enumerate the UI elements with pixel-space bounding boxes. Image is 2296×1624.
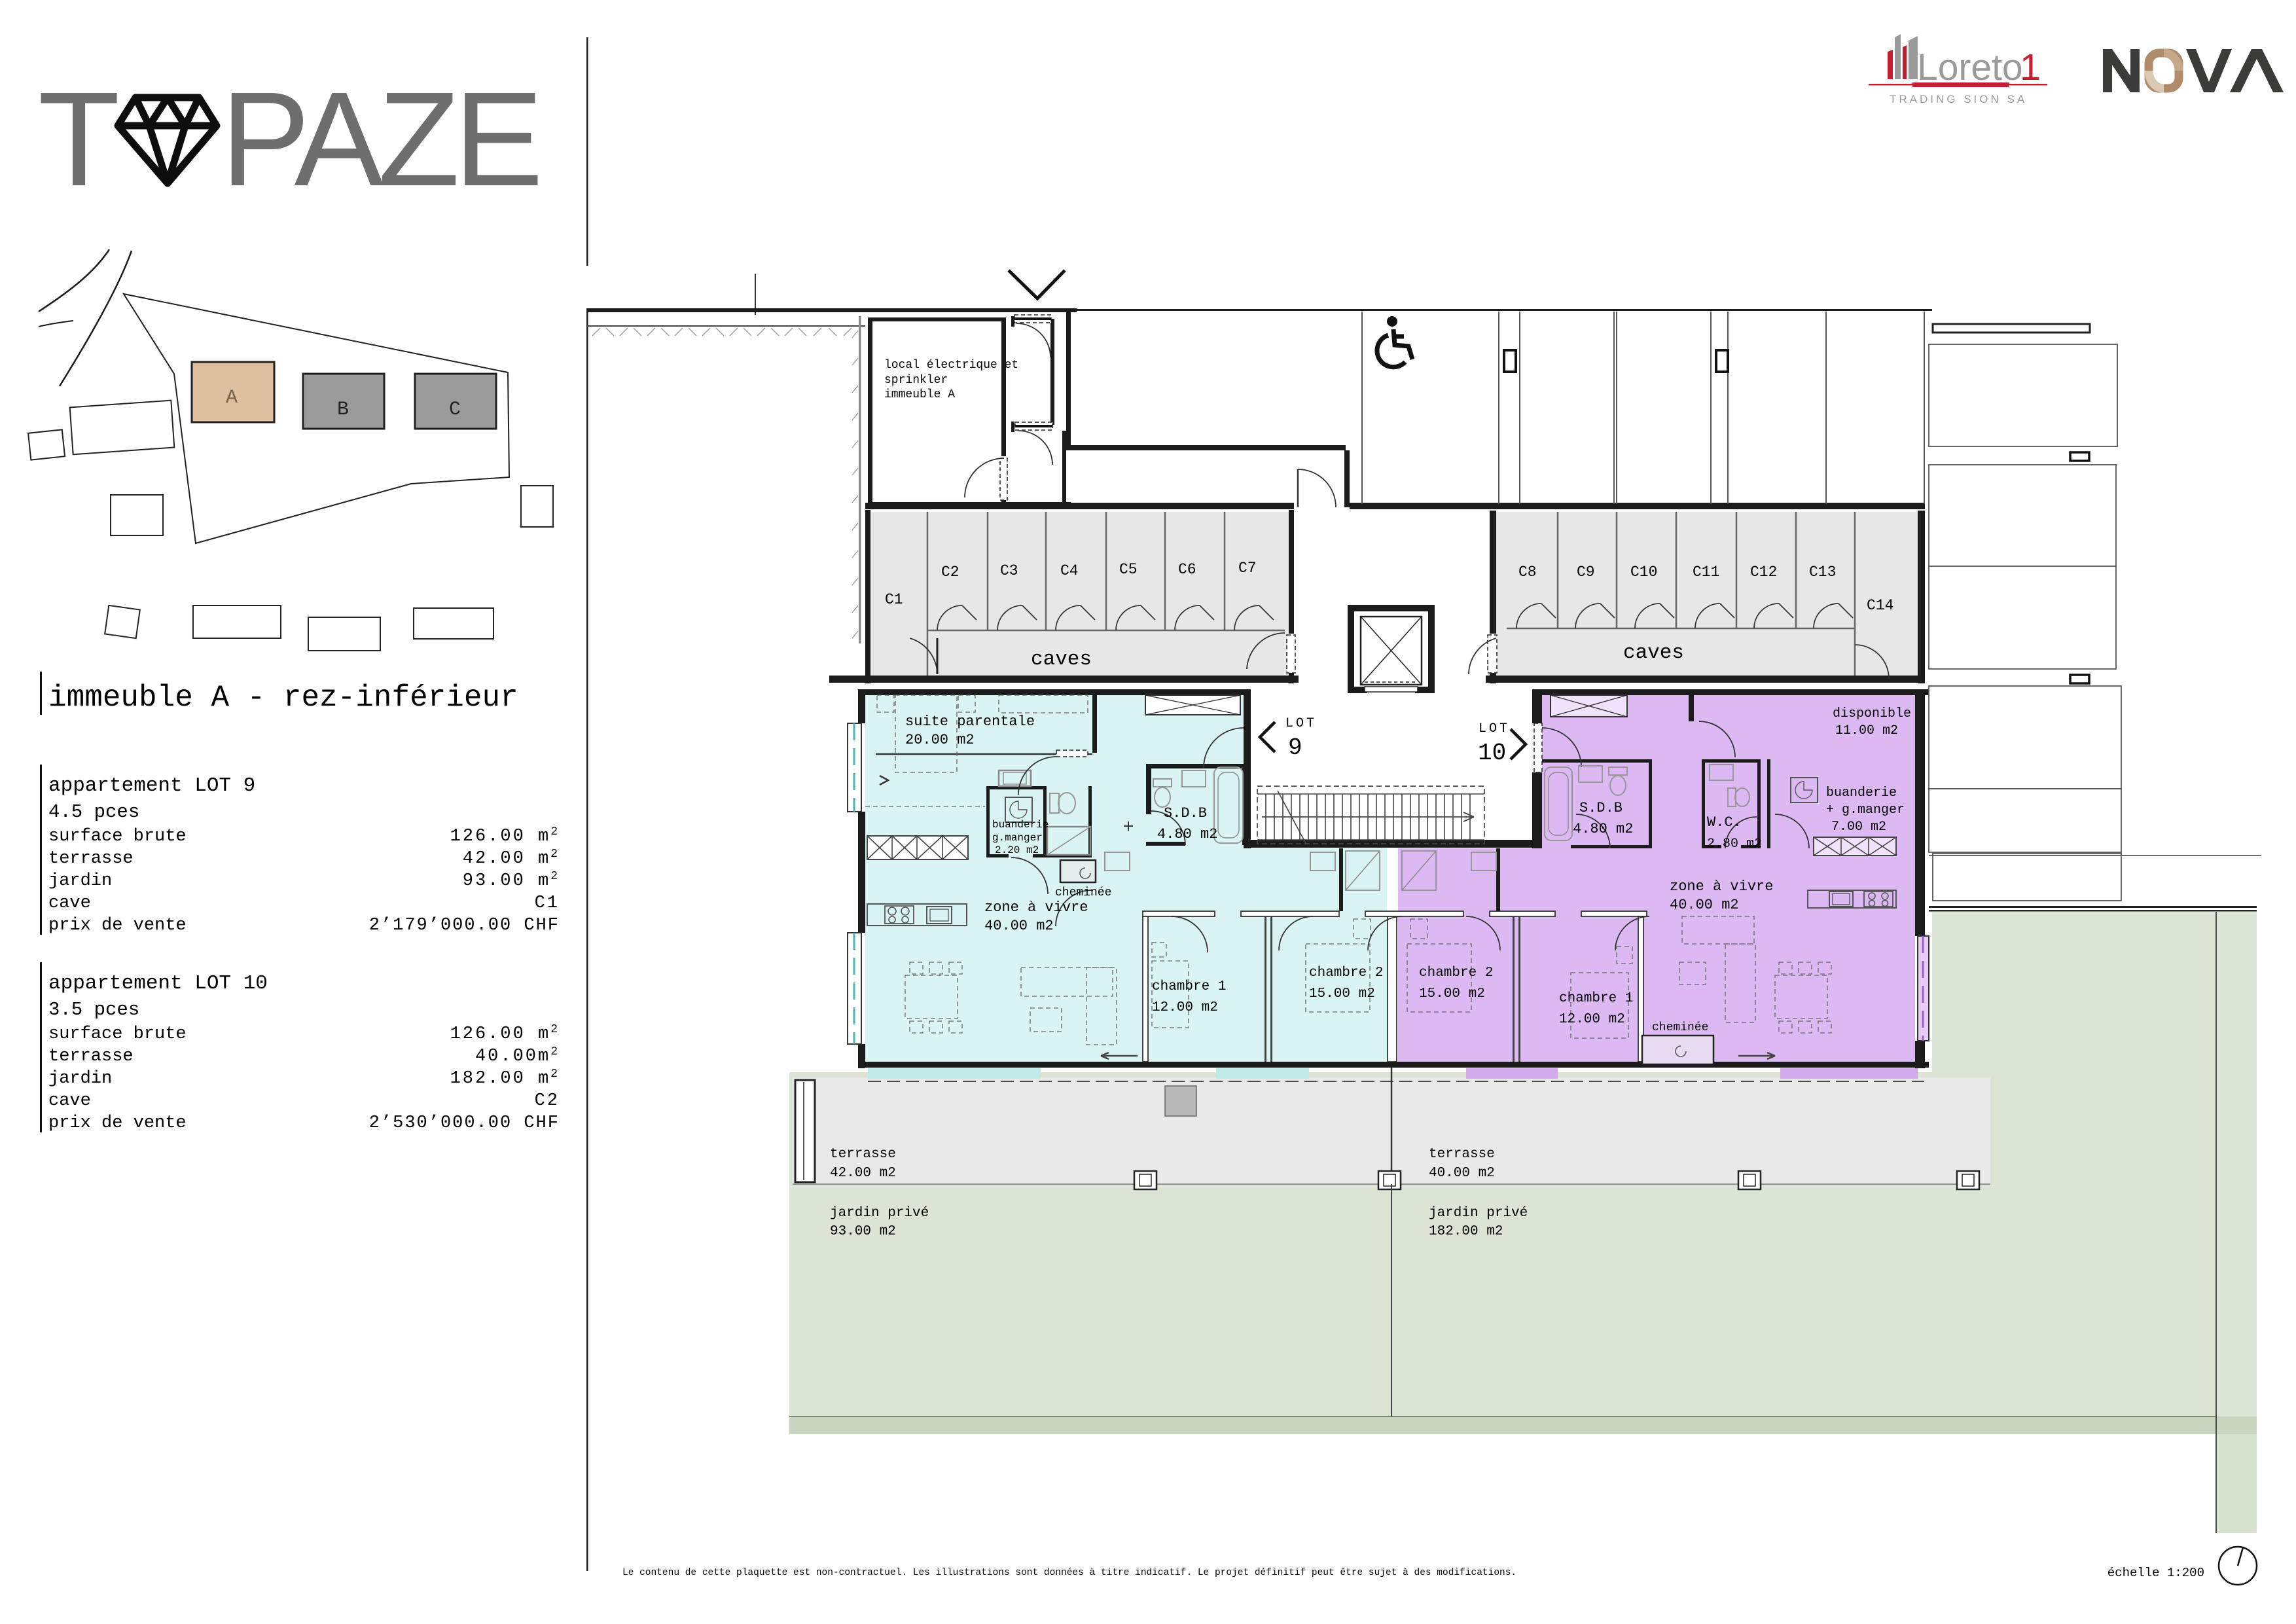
- svg-text:40.00m2: 40.00m2: [475, 1045, 560, 1066]
- svg-text:+ g.manger: + g.manger: [1826, 803, 1905, 818]
- svg-text:PAZE: PAZE: [221, 64, 537, 214]
- svg-text:chambre 2: chambre 2: [1419, 965, 1493, 981]
- svg-text:W.C.: W.C.: [1707, 814, 1742, 831]
- svg-text:appartement LOT 10: appartement LOT 10: [48, 972, 268, 995]
- svg-text:terrasse: terrasse: [830, 1147, 896, 1162]
- svg-text:cave: cave: [48, 1091, 91, 1111]
- svg-text:2’179’000.00 CHF: 2’179’000.00 CHF: [369, 916, 560, 935]
- svg-text:20.00 m2: 20.00 m2: [905, 732, 975, 748]
- svg-text:zone à vivre: zone à vivre: [984, 899, 1088, 916]
- svg-text:terrasse: terrasse: [1429, 1147, 1495, 1162]
- svg-text:surface brute: surface brute: [48, 827, 187, 846]
- svg-text:Loreto: Loreto: [1917, 46, 2023, 88]
- svg-text:126.00 m2: 126.00 m2: [450, 825, 560, 846]
- svg-text:C1: C1: [535, 893, 560, 913]
- svg-text:1: 1: [2020, 46, 2041, 88]
- svg-text:C1: C1: [885, 591, 903, 608]
- svg-text:93.00 m2: 93.00 m2: [830, 1224, 896, 1239]
- svg-text:chambre 2: chambre 2: [1309, 965, 1383, 981]
- svg-text:S.D.B: S.D.B: [1579, 800, 1623, 816]
- svg-text:immeuble A - rez-inférieur: immeuble A - rez-inférieur: [48, 681, 518, 715]
- svg-text:C6: C6: [1178, 561, 1196, 578]
- svg-text:182.00 m2: 182.00 m2: [1429, 1224, 1503, 1239]
- svg-text:9: 9: [1288, 734, 1302, 761]
- svg-text:2.20 m2: 2.20 m2: [995, 844, 1039, 856]
- svg-text:10: 10: [1478, 740, 1506, 767]
- svg-text:C5: C5: [1119, 561, 1138, 578]
- svg-text:S.D.B: S.D.B: [1164, 805, 1207, 821]
- svg-text:LOT: LOT: [1285, 716, 1317, 731]
- svg-text:4.80 m2: 4.80 m2: [1573, 821, 1633, 837]
- svg-text:126.00 m2: 126.00 m2: [450, 1023, 560, 1044]
- svg-text:C4: C4: [1060, 562, 1079, 579]
- svg-text:4.80 m2: 4.80 m2: [1157, 826, 1217, 842]
- svg-text:appartement LOT 9: appartement LOT 9: [48, 774, 255, 797]
- svg-text:chambre 1: chambre 1: [1152, 979, 1226, 994]
- svg-text:cheminée: cheminée: [1055, 886, 1111, 899]
- svg-text:C12: C12: [1750, 564, 1777, 581]
- svg-text:cave: cave: [48, 893, 91, 913]
- svg-text:disponible: disponible: [1833, 706, 1911, 721]
- svg-text:local électrique et: local électrique et: [884, 359, 1018, 372]
- svg-text:TRADING SION SA: TRADING SION SA: [1890, 93, 2027, 105]
- svg-text:11.00 m2: 11.00 m2: [1835, 723, 1898, 738]
- svg-text:prix de vente: prix de vente: [48, 916, 187, 935]
- svg-text:2.80 m2: 2.80 m2: [1707, 837, 1762, 852]
- svg-text:jardin privé: jardin privé: [1429, 1206, 1528, 1221]
- svg-text:C2: C2: [941, 564, 960, 581]
- svg-text:jardin: jardin: [48, 1069, 112, 1089]
- svg-text:C3: C3: [1000, 562, 1018, 579]
- svg-text:immeuble A: immeuble A: [884, 388, 955, 401]
- svg-text:C9: C9: [1577, 564, 1595, 581]
- svg-text:42.00 m2: 42.00 m2: [830, 1166, 896, 1181]
- svg-text:C8: C8: [1518, 564, 1537, 581]
- svg-text:buanderie: buanderie: [992, 819, 1049, 831]
- svg-text:15.00 m2: 15.00 m2: [1419, 986, 1485, 1001]
- svg-text:surface brute: surface brute: [48, 1024, 187, 1044]
- svg-text:A: A: [226, 387, 238, 409]
- svg-text:C11: C11: [1693, 564, 1719, 581]
- svg-text:caves: caves: [1031, 648, 1092, 671]
- svg-text:C10: C10: [1630, 564, 1657, 581]
- svg-text:C13: C13: [1809, 564, 1836, 581]
- svg-text:LOT: LOT: [1479, 721, 1510, 736]
- svg-text:sprinkler: sprinkler: [884, 374, 948, 387]
- svg-text:40.00 m2: 40.00 m2: [1670, 897, 1739, 913]
- svg-text:terrasse: terrasse: [48, 849, 134, 869]
- svg-text:15.00 m2: 15.00 m2: [1309, 986, 1375, 1001]
- svg-text:cheminée: cheminée: [1652, 1021, 1708, 1034]
- svg-text:caves: caves: [1623, 641, 1684, 664]
- svg-text:40.00 m2: 40.00 m2: [1429, 1166, 1495, 1181]
- svg-text:93.00 m2: 93.00 m2: [463, 870, 560, 891]
- svg-text:échelle 1:200: échelle 1:200: [2108, 1566, 2204, 1580]
- svg-text:C: C: [449, 399, 461, 421]
- svg-text:3.5 pces: 3.5 pces: [48, 999, 139, 1020]
- svg-text:12.00 m2: 12.00 m2: [1559, 1012, 1625, 1027]
- svg-text:42.00 m2: 42.00 m2: [463, 848, 560, 869]
- svg-text:zone à vivre: zone à vivre: [1670, 878, 1773, 895]
- svg-text:7.00 m2: 7.00 m2: [1831, 820, 1886, 835]
- svg-text:buanderie: buanderie: [1826, 785, 1897, 801]
- svg-text:Le contenu de cette plaquette: Le contenu de cette plaquette est non-co…: [622, 1568, 1516, 1578]
- svg-text:B: B: [337, 399, 349, 421]
- svg-text:terrasse: terrasse: [48, 1047, 134, 1066]
- svg-text:C14: C14: [1867, 597, 1893, 614]
- svg-text:jardin: jardin: [48, 871, 112, 891]
- svg-text:4.5 pces: 4.5 pces: [48, 801, 139, 823]
- svg-text:suite parentale: suite parentale: [905, 713, 1035, 730]
- svg-text:chambre 1: chambre 1: [1559, 991, 1633, 1006]
- svg-text:C7: C7: [1238, 560, 1257, 577]
- svg-text:T: T: [38, 64, 120, 214]
- svg-text:jardin privé: jardin privé: [830, 1206, 929, 1221]
- svg-text:prix de vente: prix de vente: [48, 1113, 187, 1133]
- svg-text:12.00 m2: 12.00 m2: [1152, 1000, 1218, 1015]
- svg-text:g.manger: g.manger: [992, 832, 1043, 844]
- svg-text:C2: C2: [535, 1091, 560, 1111]
- svg-text:2’530’000.00 CHF: 2’530’000.00 CHF: [369, 1113, 560, 1133]
- svg-text:40.00 m2: 40.00 m2: [984, 918, 1054, 934]
- svg-text:182.00 m2: 182.00 m2: [450, 1068, 560, 1089]
